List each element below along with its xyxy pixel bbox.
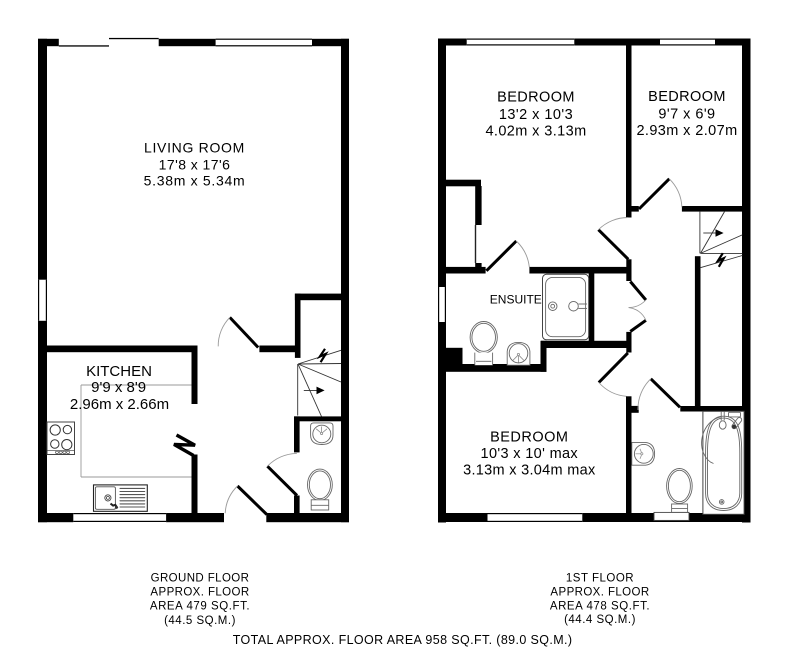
svg-text:APPROX. FLOOR: APPROX. FLOOR — [150, 587, 249, 599]
svg-text:APPROX. FLOOR: APPROX. FLOOR — [550, 587, 649, 599]
svg-text:9'7 x 6'9: 9'7 x 6'9 — [658, 106, 715, 122]
svg-text:(44.5 SQ.M.): (44.5 SQ.M.) — [164, 615, 236, 627]
svg-text:1ST FLOOR: 1ST FLOOR — [566, 573, 634, 585]
svg-text:TOTAL APPROX. FLOOR AREA 958 S: TOTAL APPROX. FLOOR AREA 958 SQ.FT. (89.… — [233, 633, 573, 647]
svg-text:(44.4 SQ.M.): (44.4 SQ.M.) — [564, 614, 636, 626]
svg-text:KITCHEN: KITCHEN — [86, 363, 152, 380]
svg-text:LIVING ROOM: LIVING ROOM — [144, 140, 245, 156]
svg-text:ENSUITE: ENSUITE — [490, 293, 542, 307]
svg-text:10'3 x 10' max: 10'3 x 10' max — [481, 446, 579, 462]
svg-text:AREA 479 SQ.FT.: AREA 479 SQ.FT. — [150, 601, 250, 613]
svg-text:AREA 478 SQ.FT.: AREA 478 SQ.FT. — [550, 600, 650, 612]
svg-text:4.02m x 3.13m: 4.02m x 3.13m — [485, 124, 586, 140]
svg-text:13'2 x 10'3: 13'2 x 10'3 — [499, 107, 573, 123]
svg-text:GROUND FLOOR: GROUND FLOOR — [151, 573, 250, 585]
svg-text:9'9 x 8'9: 9'9 x 8'9 — [91, 379, 146, 396]
svg-text:3.13m x 3.04m max: 3.13m x 3.04m max — [463, 463, 596, 479]
svg-text:BEDROOM: BEDROOM — [490, 430, 568, 446]
svg-text:2.96m x 2.66m: 2.96m x 2.66m — [70, 396, 169, 413]
svg-text:BEDROOM: BEDROOM — [648, 89, 726, 105]
svg-text:5.38m x 5.34m: 5.38m x 5.34m — [144, 173, 246, 189]
svg-text:2.93m x 2.07m: 2.93m x 2.07m — [636, 123, 737, 139]
svg-text:BEDROOM: BEDROOM — [497, 90, 575, 106]
svg-text:17'8 x 17'6: 17'8 x 17'6 — [159, 156, 231, 172]
